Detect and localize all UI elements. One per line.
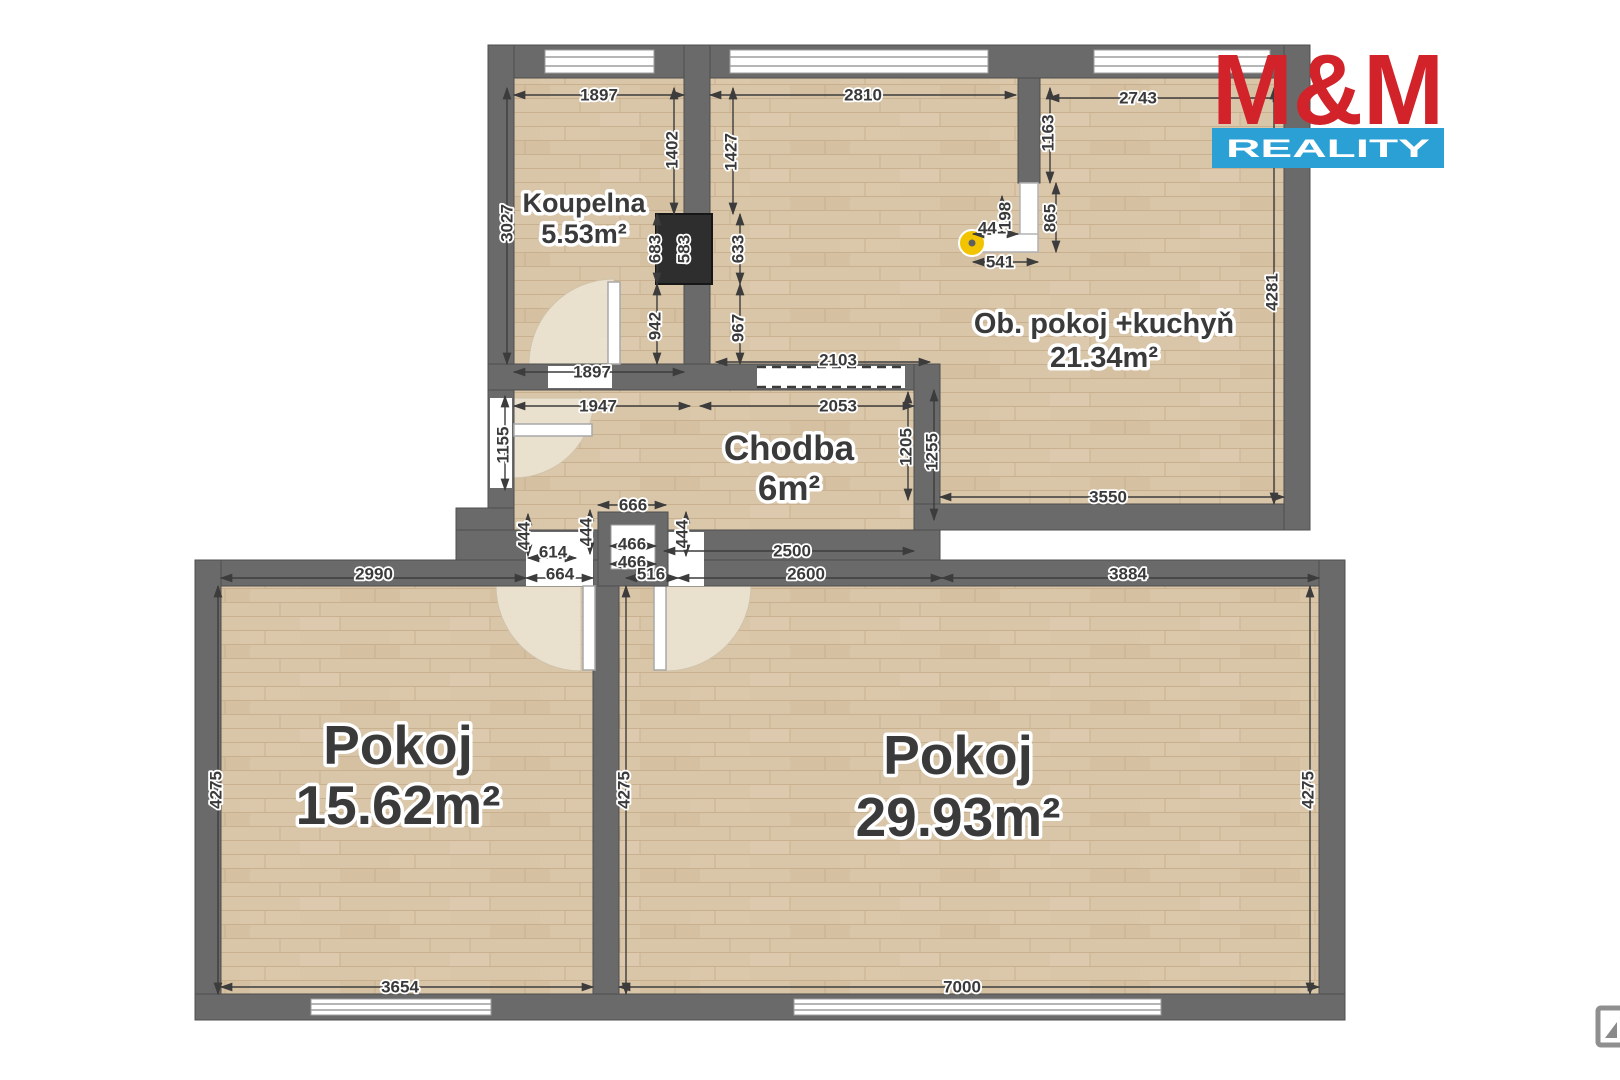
mm-reality-logo: M&M REALITY <box>1212 34 1444 168</box>
window-room1-bottom <box>311 999 491 1015</box>
dim-label: 1897 <box>573 363 611 382</box>
dim-label: 666 <box>619 496 647 515</box>
dim-label: 466 <box>618 535 646 554</box>
floor-plan-svg: 1897 2810 2743 441 541 1897 2103 1947 20… <box>0 0 1620 1080</box>
dim-label: 865 <box>1041 204 1060 232</box>
hall-label: Chodba <box>724 429 855 468</box>
dim-label: 1897 <box>580 86 618 105</box>
dim-label: 4281 <box>1263 273 1282 311</box>
room1-door-leaf <box>583 586 595 670</box>
dim-label: 198 <box>996 202 1015 230</box>
dim-label: 2600 <box>787 565 825 584</box>
entry-door-leaf <box>514 424 592 436</box>
dim-label: 4275 <box>615 771 634 809</box>
dim-label: 1947 <box>579 397 617 416</box>
dim-label: 444 <box>577 517 596 546</box>
dim-label: 7000 <box>943 978 981 997</box>
dim-label: 583 <box>675 235 694 263</box>
bathroom-label: Koupelna <box>522 188 646 218</box>
living-label: Ob. pokoj +kuchyň <box>974 308 1234 340</box>
dim-label: 2053 <box>819 397 857 416</box>
dim-label: 633 <box>729 235 748 263</box>
window-room2-bottom <box>794 999 1161 1015</box>
dim-label: 4275 <box>207 771 226 809</box>
bathroom-area: 5.53m² <box>541 219 627 249</box>
dim-label: 2500 <box>773 542 811 561</box>
dim-label: 683 <box>646 235 665 263</box>
living-area: 21.34m² <box>1050 342 1158 374</box>
bathroom-door-leaf <box>608 282 620 364</box>
expand-icon-button[interactable] <box>1598 1008 1620 1045</box>
wall-room2-right <box>1319 560 1345 1020</box>
dim-label: 614 <box>539 543 568 562</box>
room1-label: Pokoj <box>323 714 473 776</box>
dim-label: 3654 <box>381 978 419 997</box>
wall-kitchen-stub <box>1018 78 1040 183</box>
window-bathroom-top <box>545 50 654 73</box>
dim-label: 664 <box>546 565 575 584</box>
dim-label: 3550 <box>1089 488 1127 507</box>
room2-label: Pokoj <box>883 724 1033 786</box>
dim-label: 4275 <box>1299 771 1318 809</box>
wall-living-bottom <box>914 504 1310 530</box>
dim-label: 2103 <box>819 351 857 370</box>
dim-label: 1402 <box>663 131 682 169</box>
dim-label: 2743 <box>1119 89 1157 108</box>
room1-area: 15.62m² <box>296 774 501 836</box>
dim-label: 1163 <box>1039 115 1058 152</box>
dim-label: 1155 <box>494 427 513 464</box>
dim-label: 1427 <box>722 133 741 171</box>
dim-label: 444 <box>515 521 534 550</box>
room2-door-leaf <box>654 586 666 670</box>
dim-label: 2990 <box>355 565 393 584</box>
dim-label: 3027 <box>498 204 517 242</box>
floor-plan-page: 1897 2810 2743 441 541 1897 2103 1947 20… <box>0 0 1620 1080</box>
dim-label: 541 <box>986 253 1014 272</box>
dim-label: 942 <box>646 312 665 340</box>
room2-area: 29.93m² <box>856 786 1061 848</box>
dim-label: 2810 <box>844 86 882 105</box>
dim-label: 3884 <box>1109 565 1147 584</box>
hall-area: 6m² <box>758 469 820 508</box>
dim-label: 1205 <box>897 428 916 466</box>
logo-reality-text: REALITY <box>1226 135 1431 163</box>
window-living-top-left <box>730 50 988 73</box>
dim-label: 1255 <box>923 433 942 471</box>
dim-label: 967 <box>729 314 748 342</box>
dim-label: 516 <box>637 565 665 584</box>
dim-label: 444 <box>673 519 692 548</box>
